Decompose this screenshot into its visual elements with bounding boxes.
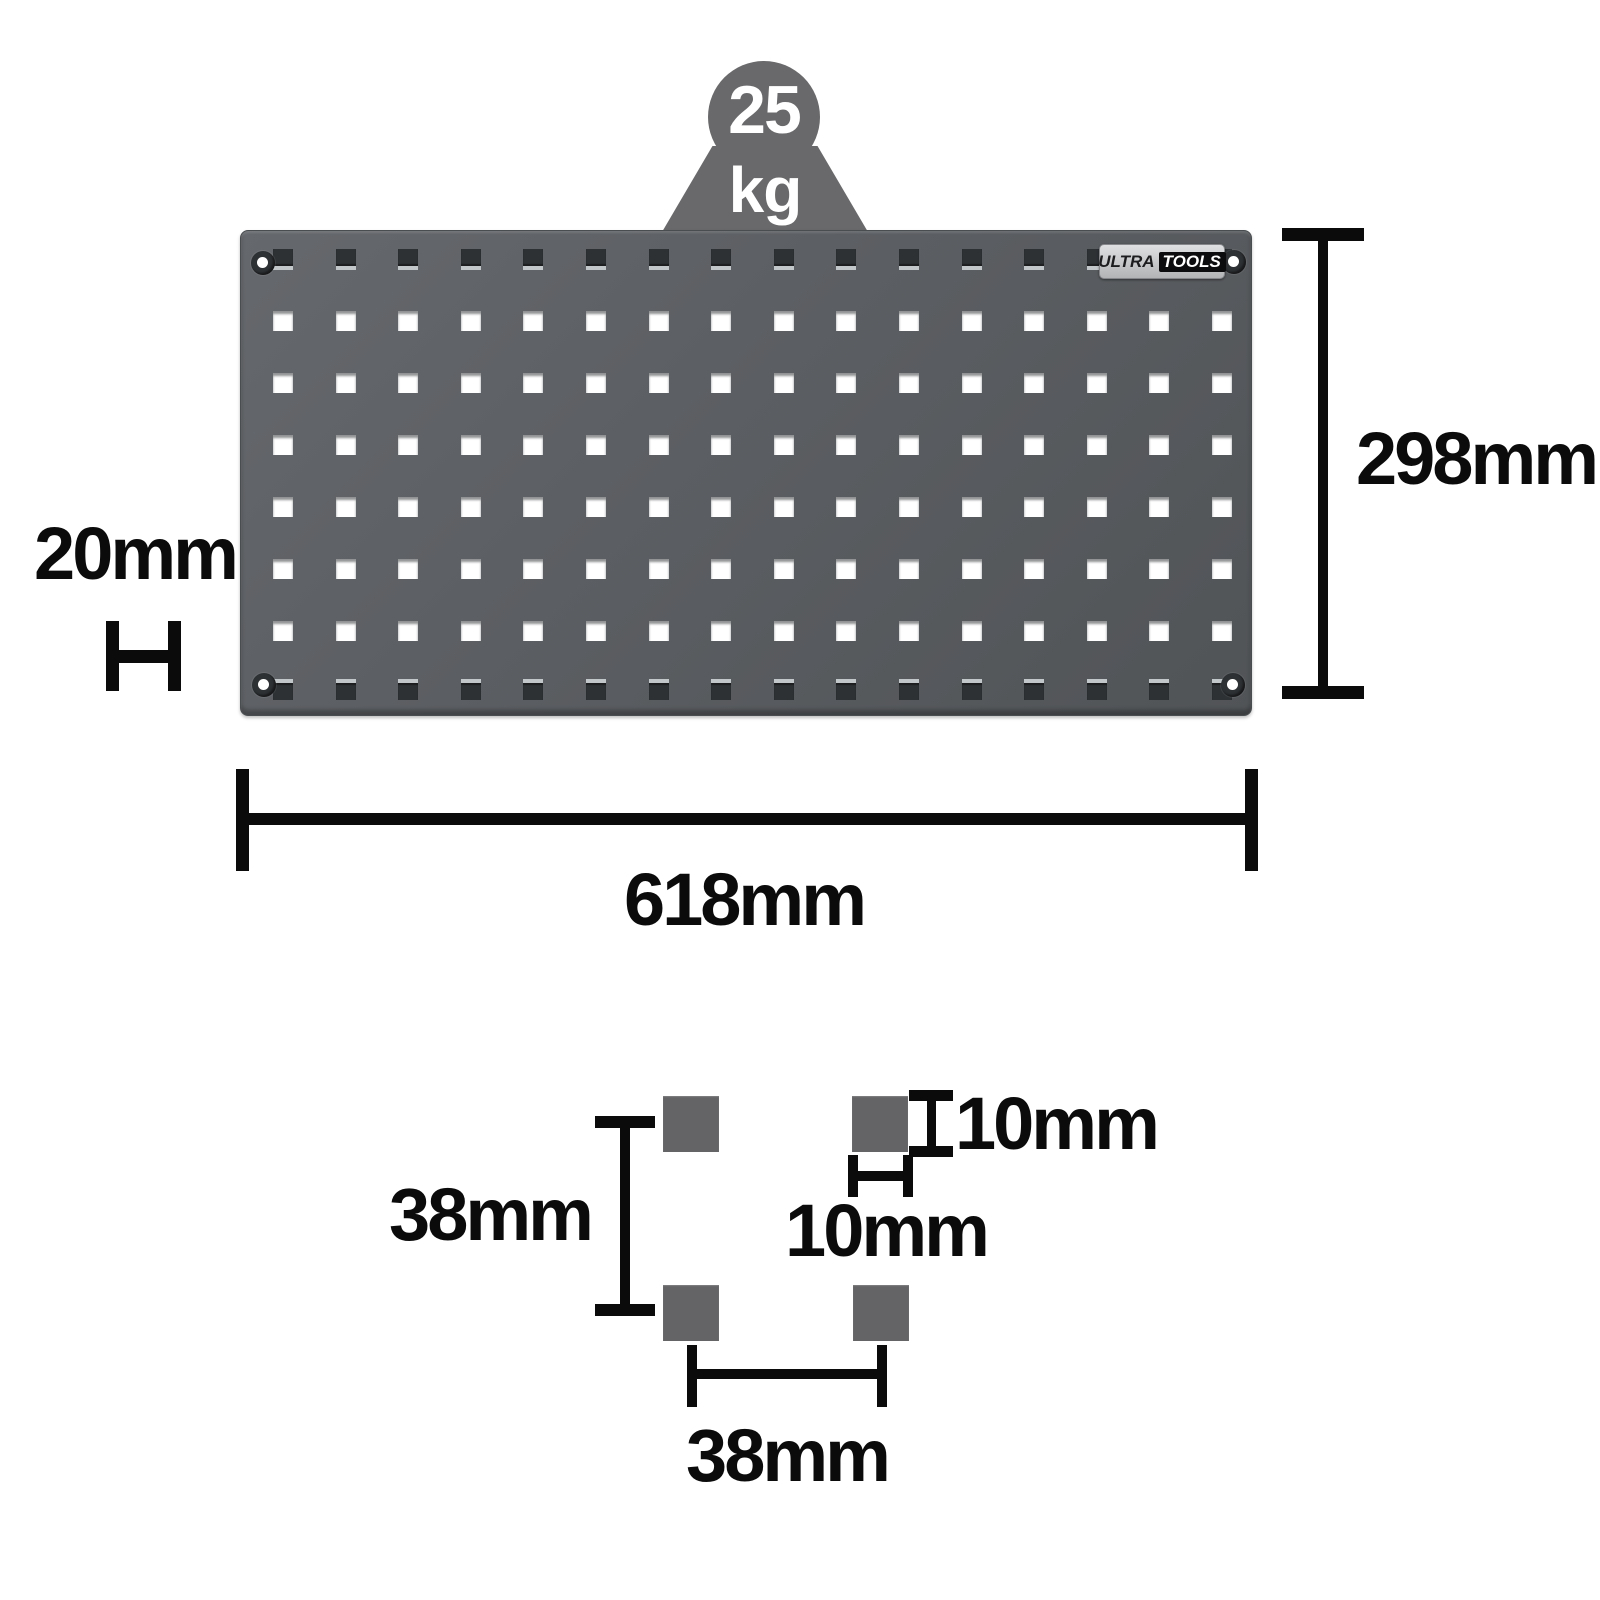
pegboard-hole — [461, 621, 481, 641]
dim-height-label: 298mm — [1356, 422, 1596, 496]
pegboard-hole — [774, 435, 794, 455]
screw-pin — [257, 257, 268, 268]
pegboard-hole — [398, 621, 418, 641]
pegboard-hole — [1149, 621, 1169, 641]
pegboard-hole — [899, 621, 919, 641]
pegboard-hole — [711, 249, 731, 266]
detail-hole-bottom-left — [663, 1285, 719, 1341]
dim-width-cap-left — [236, 769, 249, 871]
pegboard-hole — [586, 683, 606, 700]
pegboard-hole — [1212, 559, 1232, 579]
dim-depth-label: 20mm — [30, 517, 240, 591]
pegboard-hole — [586, 435, 606, 455]
pegboard-hole — [962, 249, 982, 266]
pegboard-hole — [711, 311, 731, 331]
pegboard-hole — [336, 249, 356, 266]
pegboard-hole — [336, 311, 356, 331]
detail-hole-top-right — [852, 1096, 908, 1152]
pegboard-hole — [461, 249, 481, 266]
pegboard-hole — [1024, 621, 1044, 641]
pegboard-hole — [774, 559, 794, 579]
pegboard-hole — [962, 497, 982, 517]
pegboard-hole — [962, 435, 982, 455]
dim-height-line — [1318, 231, 1328, 693]
pegboard-hole — [1149, 311, 1169, 331]
pegboard-hole — [336, 497, 356, 517]
dim-holewidth-label: 10mm — [736, 1194, 1036, 1268]
pegboard-hole — [523, 559, 543, 579]
pegboard-hole — [461, 497, 481, 517]
pegboard-hole — [523, 435, 543, 455]
pegboard-hole — [711, 373, 731, 393]
pegboard-hole — [836, 249, 856, 266]
pegboard-hole — [774, 311, 794, 331]
pegboard-hole — [586, 311, 606, 331]
pegboard-hole — [711, 559, 731, 579]
pegboard-hole — [649, 311, 669, 331]
screw-hole-top-left — [251, 251, 275, 275]
pegboard-hole — [336, 373, 356, 393]
dim-holeheight-line — [927, 1095, 936, 1152]
pegboard-hole — [586, 497, 606, 517]
pegboard-hole — [899, 249, 919, 266]
dim-holewidth-line — [853, 1171, 908, 1181]
pegboard-hole — [899, 559, 919, 579]
pegboard-hole — [398, 373, 418, 393]
pegboard-hole — [461, 373, 481, 393]
pegboard-hole — [273, 559, 293, 579]
dim-vspacing-line — [620, 1122, 630, 1310]
pegboard-hole — [523, 311, 543, 331]
pegboard-hole — [1212, 373, 1232, 393]
pegboard-hole — [273, 311, 293, 331]
pegboard-hole — [649, 435, 669, 455]
pegboard-hole — [586, 249, 606, 266]
pegboard-hole — [398, 683, 418, 700]
pegboard-hole — [899, 497, 919, 517]
pegboard-hole — [836, 683, 856, 700]
pegboard-hole — [1149, 373, 1169, 393]
weight-value: 25 — [708, 76, 820, 144]
dim-hspacing-cap-right — [877, 1345, 887, 1407]
pegboard-hole — [1212, 311, 1232, 331]
dim-holeheight-label: 10mm — [955, 1087, 1157, 1161]
pegboard-hole — [523, 249, 543, 266]
pegboard-hole — [774, 497, 794, 517]
pegboard-hole — [273, 373, 293, 393]
pegboard-hole — [1087, 683, 1107, 700]
pegboard-hole — [586, 621, 606, 641]
dim-height-cap-top — [1282, 228, 1364, 241]
pegboard-hole — [1087, 621, 1107, 641]
dim-vspacing-cap-bottom — [595, 1304, 655, 1316]
dim-vspacing-label: 38mm — [385, 1178, 595, 1252]
pegboard-hole — [899, 373, 919, 393]
pegboard-hole — [1024, 373, 1044, 393]
pegboard-hole — [649, 683, 669, 700]
pegboard-hole — [1149, 435, 1169, 455]
pegboard-hole — [649, 559, 669, 579]
pegboard-hole — [1087, 311, 1107, 331]
pegboard-hole — [899, 435, 919, 455]
dim-holeheight-cap-top — [909, 1090, 953, 1101]
pegboard-hole — [774, 683, 794, 700]
pegboard-hole — [1024, 559, 1044, 579]
pegboard-hole — [1024, 249, 1044, 266]
pegboard-hole — [774, 373, 794, 393]
pegboard-hole — [523, 373, 543, 393]
pegboard-hole — [523, 621, 543, 641]
pegboard-hole — [1087, 435, 1107, 455]
dim-height-cap-bottom — [1282, 686, 1364, 699]
pegboard-hole — [336, 435, 356, 455]
pegboard-hole — [1087, 559, 1107, 579]
pegboard-panel: ULTRA TOOLS — [240, 230, 1252, 716]
pegboard-hole — [1024, 497, 1044, 517]
pegboard-hole — [1212, 621, 1232, 641]
pegboard-hole — [1024, 683, 1044, 700]
pegboard-hole — [649, 497, 669, 517]
pegboard-hole — [461, 683, 481, 700]
pegboard-hole — [1024, 311, 1044, 331]
pegboard-hole — [962, 621, 982, 641]
pegboard-hole — [461, 559, 481, 579]
screw-pin — [1227, 679, 1238, 690]
brand-ultra-label: ULTRA — [1098, 252, 1154, 272]
detail-hole-top-left — [663, 1096, 719, 1152]
dim-width-line — [242, 813, 1252, 825]
pegboard-hole — [398, 249, 418, 266]
pegboard-hole — [1149, 683, 1169, 700]
product-dimension-diagram: 25 kg ULTRA TOOLS 298mm 20mm 618mm — [0, 0, 1600, 1600]
pegboard-hole — [461, 435, 481, 455]
pegboard-hole — [1087, 497, 1107, 517]
pegboard-hole — [649, 373, 669, 393]
brand-badge: ULTRA TOOLS — [1099, 244, 1225, 279]
pegboard-hole — [899, 311, 919, 331]
pegboard-hole — [774, 249, 794, 266]
dim-width-label: 618mm — [569, 863, 919, 937]
pegboard-hole — [711, 435, 731, 455]
pegboard-hole — [962, 311, 982, 331]
dim-hspacing-label: 38mm — [637, 1419, 937, 1493]
dim-hspacing-line — [692, 1369, 882, 1379]
screw-hole-bottom-right — [1221, 673, 1245, 697]
pegboard-hole — [461, 311, 481, 331]
pegboard-hole — [1212, 497, 1232, 517]
pegboard-hole — [523, 497, 543, 517]
pegboard-hole — [336, 683, 356, 700]
pegboard-hole — [711, 683, 731, 700]
pegboard-hole — [273, 435, 293, 455]
pegboard-hole — [273, 249, 293, 266]
pegboard-hole — [711, 497, 731, 517]
pegboard-hole — [273, 621, 293, 641]
pegboard-hole — [1087, 373, 1107, 393]
pegboard-hole — [962, 373, 982, 393]
pegboard-hole — [1149, 497, 1169, 517]
pegboard-hole — [273, 497, 293, 517]
pegboard-hole — [1024, 435, 1044, 455]
pegboard-hole — [523, 683, 543, 700]
dim-vspacing-cap-top — [595, 1116, 655, 1128]
pegboard-hole — [836, 435, 856, 455]
dim-depth-line — [106, 650, 181, 663]
pegboard-hole — [1149, 559, 1169, 579]
pegboard-hole — [398, 559, 418, 579]
pegboard-hole — [711, 621, 731, 641]
pegboard-hole — [774, 621, 794, 641]
screw-pin — [258, 679, 269, 690]
pegboard-hole — [398, 435, 418, 455]
pegboard-hole — [398, 497, 418, 517]
pegboard-hole — [586, 373, 606, 393]
pegboard-hole — [836, 373, 856, 393]
pegboard-hole — [336, 559, 356, 579]
pegboard-hole — [649, 249, 669, 266]
pegboard-hole — [899, 683, 919, 700]
detail-hole-bottom-right — [853, 1285, 909, 1341]
pegboard-hole — [836, 559, 856, 579]
pegboard-hole — [962, 683, 982, 700]
pegboard-hole — [398, 311, 418, 331]
screw-hole-bottom-left — [252, 673, 276, 697]
weight-unit: kg — [662, 158, 868, 222]
dim-width-cap-right — [1245, 769, 1258, 871]
pegboard-hole — [273, 683, 293, 700]
dim-hspacing-cap-left — [687, 1345, 697, 1407]
pegboard-hole — [836, 497, 856, 517]
pegboard-hole — [1212, 435, 1232, 455]
pegboard-hole — [336, 621, 356, 641]
pegboard-hole — [836, 311, 856, 331]
pegboard-hole — [836, 621, 856, 641]
screw-pin — [1228, 256, 1239, 267]
brand-tools-label: TOOLS — [1159, 252, 1226, 272]
pegboard-hole — [649, 621, 669, 641]
dim-holeheight-cap-bottom — [909, 1146, 953, 1157]
pegboard-hole — [586, 559, 606, 579]
pegboard-hole — [962, 559, 982, 579]
